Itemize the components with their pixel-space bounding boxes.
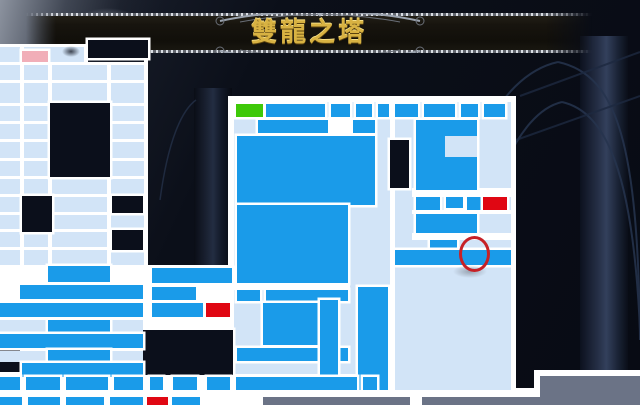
wall-block-c1: [328, 117, 352, 134]
hall-upper: [237, 136, 375, 205]
bb-room-4: [114, 377, 143, 390]
bb-room-3: [66, 377, 108, 390]
bc-room-2: [28, 397, 60, 405]
room-r3: [446, 197, 463, 208]
room-top-a: [266, 104, 325, 117]
room-top-b: [331, 104, 350, 117]
room-pink: [22, 51, 48, 62]
bl-room-2: [20, 285, 143, 299]
room-r6: [395, 250, 511, 265]
bl-room-8: [48, 350, 110, 362]
room-rtop-c: [461, 104, 478, 117]
bb-room-2: [26, 377, 60, 390]
notch-n3: [22, 196, 52, 232]
column-right-c: [358, 287, 388, 390]
wall-band-c2: [234, 283, 350, 290]
wall-v1: [20, 47, 24, 265]
game-map-screen: 雙龍之塔: [0, 0, 640, 405]
bl-room-6: [48, 320, 110, 332]
bl-room-7: [0, 334, 143, 348]
save-room-red-right: [483, 197, 507, 210]
legend-bar: [263, 397, 540, 405]
hall-lower: [237, 205, 348, 283]
notch-n1: [88, 40, 148, 58]
room-row2-a: [258, 120, 328, 133]
entrance-room-green: [236, 104, 263, 117]
notch-n7: [143, 330, 233, 375]
bb-room-9: [363, 377, 377, 390]
save-room-red-bottom: [147, 397, 168, 405]
room-r1: [416, 197, 440, 210]
map-canvas: [0, 0, 640, 405]
bb-room-6: [173, 377, 197, 390]
bc-room-1: [0, 397, 22, 405]
cursor-smudge: [62, 46, 80, 57]
notch-n2: [50, 103, 110, 177]
room-r4: [416, 214, 477, 233]
bb-room-1: [0, 377, 20, 390]
notch-n8: [390, 140, 409, 188]
bb-room-7: [207, 377, 230, 390]
bl-room-5: [152, 303, 203, 317]
bb-room-5: [150, 377, 163, 390]
legend-inset: [540, 376, 640, 405]
bl-room-1: [48, 266, 110, 282]
notch-n4: [112, 196, 143, 213]
room-rtop-d: [484, 104, 505, 117]
notch-n5: [112, 230, 143, 250]
target-circle-annotation: [459, 236, 490, 272]
room-r5: [430, 240, 457, 250]
room-top-d: [378, 104, 389, 117]
room-rtop-a: [395, 104, 418, 117]
bc-room-3: [66, 397, 104, 405]
room-rtop-b: [424, 104, 455, 117]
bl-room-4: [0, 303, 143, 317]
room-row2-b: [353, 120, 375, 133]
room-r2: [467, 197, 483, 210]
room-top-c: [356, 104, 372, 117]
room-row3-a: [237, 290, 260, 301]
legend-bar-notch: [410, 395, 422, 405]
save-room-red-left: [206, 303, 230, 317]
wall-band-r3: [412, 233, 511, 240]
bc-room-5: [172, 397, 200, 405]
bl-room-10: [152, 268, 232, 283]
bl-room-9: [22, 363, 143, 377]
bb-room-8: [236, 377, 357, 390]
tower-right-inset: [445, 136, 477, 157]
bc-room-4: [110, 397, 143, 405]
bl-room-3: [152, 287, 196, 300]
